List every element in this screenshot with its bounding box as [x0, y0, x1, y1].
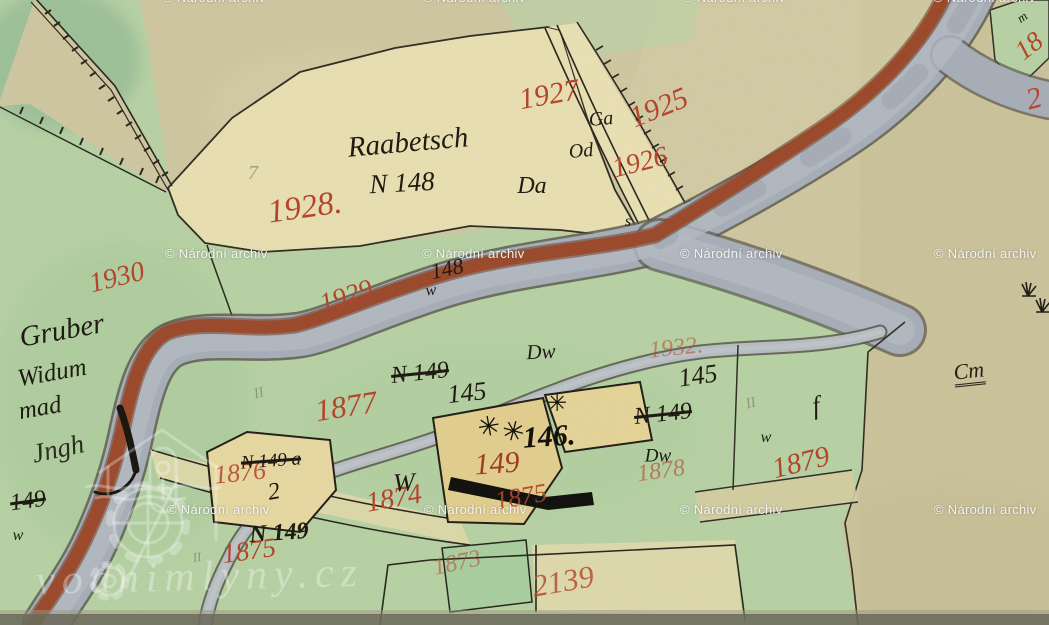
- map-canvas: [0, 0, 1049, 625]
- scan-edge-shadow: [0, 614, 1049, 625]
- historical-map-scan: 1927192519261928.1930192918771932.187614…: [0, 0, 1049, 625]
- vodnimlyny-watermark-text: vodnimlyny.cz: [36, 549, 365, 606]
